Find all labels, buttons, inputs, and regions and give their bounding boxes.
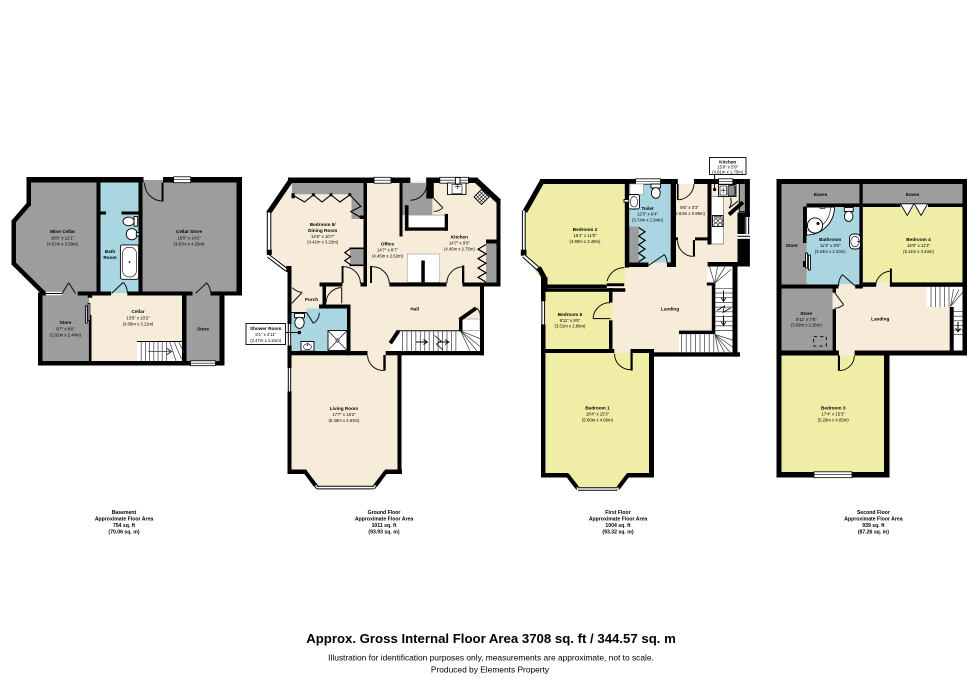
svg-text:Store: Store xyxy=(197,327,209,332)
svg-text:Bath: Bath xyxy=(105,249,116,254)
svg-text:(3.02m x 2.26m): (3.02m x 2.26m) xyxy=(791,323,823,328)
svg-text:Room: Room xyxy=(103,255,116,260)
svg-text:Bedroom 4: Bedroom 4 xyxy=(906,237,931,242)
svg-text:9'7" x 8'0": 9'7" x 8'0" xyxy=(56,327,75,332)
svg-text:(4.45m x 2.75m): (4.45m x 2.75m) xyxy=(444,246,476,251)
svg-text:939 sq. ft: 939 sq. ft xyxy=(862,523,885,529)
svg-text:Landing: Landing xyxy=(661,307,679,312)
svg-text:17'4" x 15'3": 17'4" x 15'3" xyxy=(822,412,846,417)
svg-text:9'11" x 9'5": 9'11" x 9'5" xyxy=(560,318,581,323)
svg-text:(4.67m x 4.29m): (4.67m x 4.29m) xyxy=(174,241,206,246)
svg-text:(87.26 sq. m): (87.26 sq. m) xyxy=(858,530,889,536)
svg-text:11'3" x 8'0": 11'3" x 8'0" xyxy=(820,243,841,248)
svg-text:(4.90m x 3.49m): (4.90m x 3.49m) xyxy=(570,239,602,244)
svg-text:First Floor: First Floor xyxy=(605,510,630,516)
svg-text:Approximate Floor Area: Approximate Floor Area xyxy=(844,517,903,523)
svg-text:Approximate Floor Area: Approximate Floor Area xyxy=(95,517,154,523)
svg-text:Hall: Hall xyxy=(410,307,419,312)
svg-text:14'7" x 8'7": 14'7" x 8'7" xyxy=(377,248,398,253)
svg-text:Bedroom 6: Bedroom 6 xyxy=(558,312,583,317)
svg-text:(4.42m x 3.22m): (4.42m x 3.22m) xyxy=(307,240,339,245)
svg-text:8'1" x 4'11": 8'1" x 4'11" xyxy=(255,332,276,337)
svg-text:754 sq. ft: 754 sq. ft xyxy=(113,523,136,529)
svg-text:Second Floor: Second Floor xyxy=(857,510,890,516)
svg-text:Wine Cellar: Wine Cellar xyxy=(50,229,76,234)
svg-text:(4.45m x 2.62m): (4.45m x 2.62m) xyxy=(372,253,404,258)
svg-text:Dining Room: Dining Room xyxy=(308,228,337,233)
svg-text:(93.32 sq. m): (93.32 sq. m) xyxy=(602,530,633,536)
svg-text:Approximate Floor Area: Approximate Floor Area xyxy=(589,517,648,523)
svg-text:(2.92m x 2.44m): (2.92m x 2.44m) xyxy=(50,332,82,337)
svg-text:Living Room: Living Room xyxy=(330,406,358,411)
svg-text:1004 sq. ft: 1004 sq. ft xyxy=(605,523,630,529)
svg-text:18'4" x 15'3": 18'4" x 15'3" xyxy=(586,412,610,417)
svg-text:Ground Floor: Ground Floor xyxy=(368,510,401,516)
svg-text:(2.47m x 1.51m): (2.47m x 1.51m) xyxy=(250,338,282,343)
svg-text:Cellar Store: Cellar Store xyxy=(176,229,203,234)
svg-text:12'3" x 6'4": 12'3" x 6'4" xyxy=(637,212,658,217)
svg-text:Bedroom 1: Bedroom 1 xyxy=(585,406,610,411)
svg-text:(3.01m x 2.86m): (3.01m x 2.86m) xyxy=(555,324,587,329)
svg-text:Store: Store xyxy=(786,243,798,248)
svg-text:Store: Store xyxy=(800,311,812,316)
svg-text:17'7" x 15'2": 17'7" x 15'2" xyxy=(332,412,356,417)
svg-text:(93.93 sq. m): (93.93 sq. m) xyxy=(368,530,399,536)
svg-text:(5.60m x 4.66m): (5.60m x 4.66m) xyxy=(582,417,614,422)
svg-text:9'11" x 7'5": 9'11" x 7'5" xyxy=(796,317,817,322)
svg-text:Landing: Landing xyxy=(871,317,889,322)
svg-text:(4.08m x 3.11m): (4.08m x 3.11m) xyxy=(123,321,154,326)
svg-text:Approx. Gross Internal Floor A: Approx. Gross Internal Floor Area 3708 s… xyxy=(306,631,676,646)
svg-text:14'6" x 10'7": 14'6" x 10'7" xyxy=(311,234,335,239)
svg-text:14'7" x 9'0": 14'7" x 9'0" xyxy=(449,241,470,246)
svg-text:(2.63m x 0.99m): (2.63m x 0.99m) xyxy=(674,211,706,216)
svg-text:Kitchen: Kitchen xyxy=(451,235,468,240)
svg-text:Approximate Floor Area: Approximate Floor Area xyxy=(355,517,414,523)
svg-text:(5.29m x 4.65m): (5.29m x 4.65m) xyxy=(818,417,850,422)
svg-text:Toilet: Toilet xyxy=(641,206,654,211)
svg-text:Eaves: Eaves xyxy=(906,192,920,197)
svg-text:(5.36m x 4.63m): (5.36m x 4.63m) xyxy=(329,418,361,423)
svg-text:Illustration for identificatio: Illustration for identification purposes… xyxy=(328,653,654,663)
svg-text:Bathroom: Bathroom xyxy=(819,237,841,242)
svg-text:(4.81m x 1.75m): (4.81m x 1.75m) xyxy=(712,170,744,175)
svg-text:Porch: Porch xyxy=(305,297,318,302)
svg-text:8'6" x 3'3": 8'6" x 3'3" xyxy=(680,205,699,210)
svg-text:(3.74m x 1.94m): (3.74m x 1.94m) xyxy=(632,217,664,222)
svg-text:16'1" x 11'5": 16'1" x 11'5" xyxy=(574,233,597,238)
svg-text:(4.87m x 3.69m): (4.87m x 3.69m) xyxy=(47,241,79,246)
svg-text:(70.06 sq. m): (70.06 sq. m) xyxy=(108,530,139,536)
svg-text:Eaves: Eaves xyxy=(814,192,828,197)
svg-text:Bedroom 5/: Bedroom 5/ xyxy=(310,222,336,227)
svg-text:Cellar: Cellar xyxy=(131,309,144,314)
svg-text:16'0" x 12'1": 16'0" x 12'1" xyxy=(51,236,75,241)
svg-text:Bedroom 2: Bedroom 2 xyxy=(573,227,598,232)
svg-text:Bedroom 3: Bedroom 3 xyxy=(821,406,846,411)
svg-text:Store: Store xyxy=(60,320,72,325)
svg-text:16'9" x 11'3": 16'9" x 11'3" xyxy=(907,243,930,248)
svg-text:1011 sq. ft: 1011 sq. ft xyxy=(372,523,397,529)
svg-text:Shower Room: Shower Room xyxy=(250,326,282,331)
svg-text:(5.11m x 3.44m): (5.11m x 3.44m) xyxy=(903,249,934,254)
svg-text:13'5" x 10'2": 13'5" x 10'2" xyxy=(126,316,150,321)
svg-text:Produced by Elements Property: Produced by Elements Property xyxy=(431,665,550,675)
svg-text:Office: Office xyxy=(381,242,395,247)
svg-text:16'0" x 14'1": 16'0" x 14'1" xyxy=(177,236,201,241)
svg-text:(3.44m x 2.43m): (3.44m x 2.43m) xyxy=(815,249,847,254)
svg-text:Basement: Basement xyxy=(112,510,137,516)
